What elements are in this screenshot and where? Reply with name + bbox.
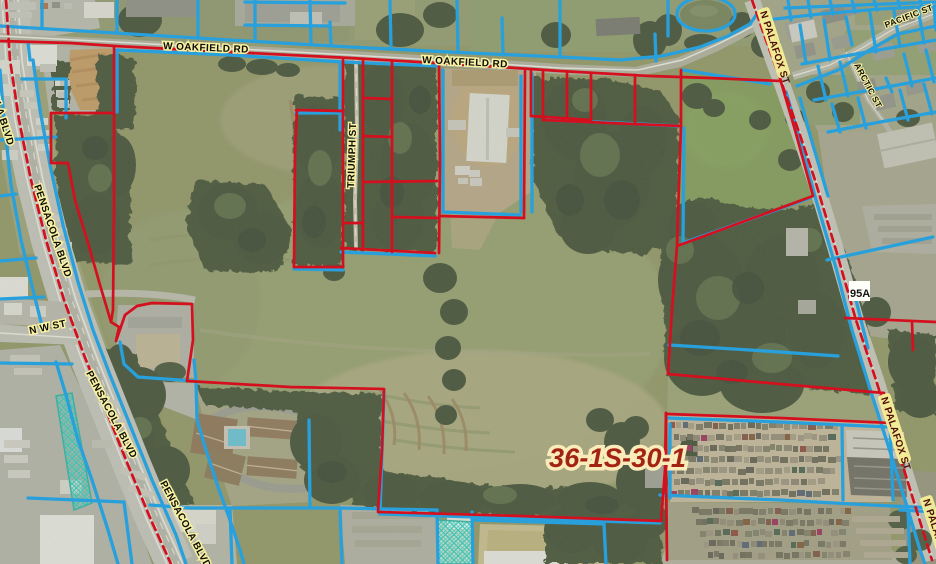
- svg-text:36-1S-30-1: 36-1S-30-1: [549, 443, 686, 473]
- svg-text:95A: 95A: [850, 288, 870, 300]
- svg-text:TRIUMPH ST: TRIUMPH ST: [346, 123, 359, 188]
